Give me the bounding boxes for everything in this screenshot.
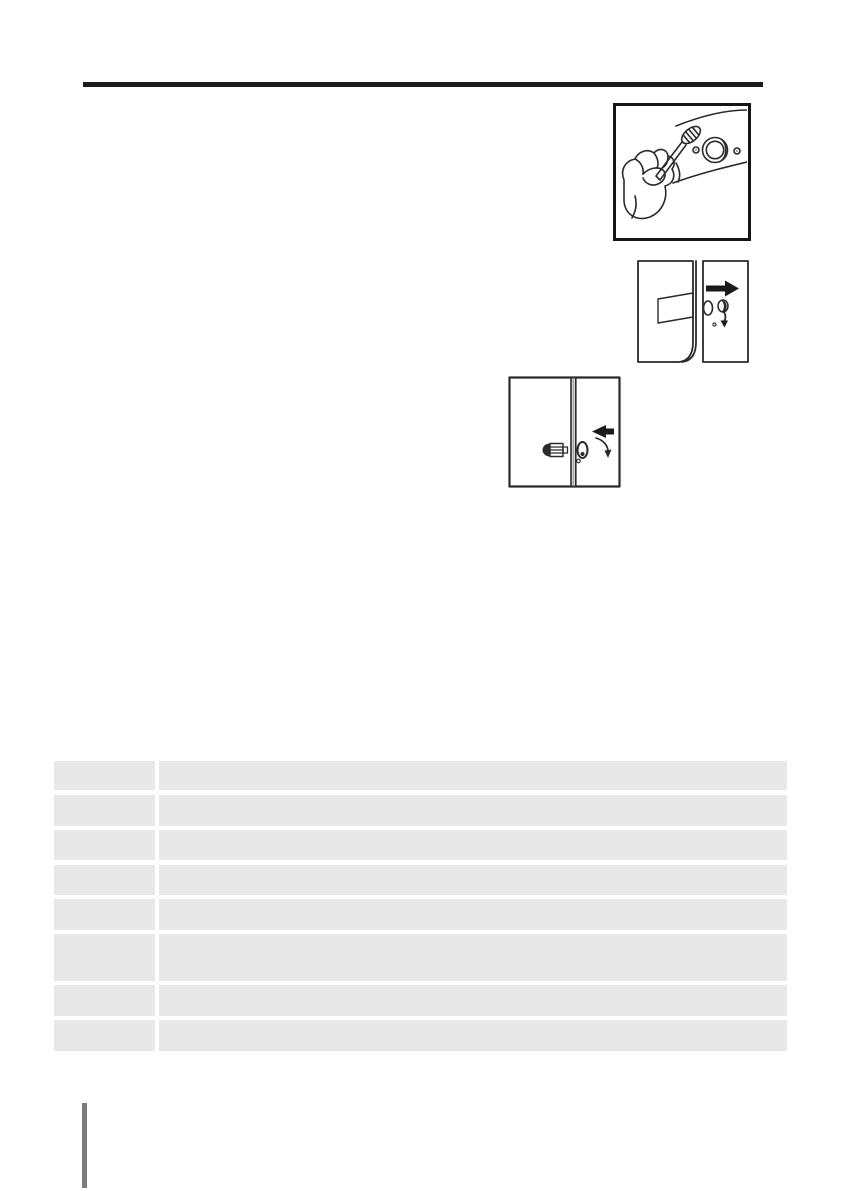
table-cell-desc (159, 865, 787, 895)
hand-icon (623, 149, 674, 218)
page-edge-bar (82, 1103, 87, 1188)
table-cell-term (54, 934, 155, 981)
section-divider-rule (83, 82, 763, 87)
down-arrow-head (721, 321, 729, 328)
plug-icon (713, 300, 728, 328)
figure-door-gap-plug (508, 376, 621, 488)
hole-dot (581, 452, 585, 456)
screw-left-icon (693, 147, 699, 153)
figure-door-panels-plug (636, 257, 750, 369)
table-cell-term (54, 985, 155, 1016)
table-row (54, 899, 787, 930)
left-arrow-icon (592, 425, 614, 438)
table-cell-desc (159, 761, 787, 790)
door-panels-line-art (636, 257, 750, 369)
fitting-ring-icon (703, 138, 728, 163)
table-cell-desc (159, 795, 787, 826)
table-cell-term (54, 899, 155, 930)
rotate-arrow-head (605, 450, 612, 459)
screw-plug-icon (543, 444, 568, 457)
left-door-edge-line (682, 261, 696, 362)
table-cell-desc (159, 934, 787, 981)
panel-top-edge (676, 110, 747, 126)
table-row (54, 1020, 787, 1051)
table-row (54, 761, 787, 790)
table-row (54, 934, 787, 981)
tiny-ring (713, 323, 716, 326)
table-cell-desc (159, 985, 787, 1016)
cleaning-fitting-line-art (616, 106, 747, 237)
spec-table (54, 761, 787, 1051)
panel-bottom-edge (673, 162, 747, 183)
figure-cleaning-fitting (613, 103, 751, 241)
manual-page (0, 0, 842, 1191)
table-row (54, 830, 787, 860)
door-gap (571, 379, 576, 486)
table-cell-term (54, 761, 155, 790)
hole-oval (704, 301, 713, 315)
door-sticker (658, 293, 693, 323)
panel-fold-arc (676, 163, 680, 182)
table-row (54, 865, 787, 895)
table-cell-term (54, 830, 155, 860)
right-arrow-icon (706, 281, 739, 297)
table-cell-term (54, 1020, 155, 1051)
table-row (54, 985, 787, 1016)
door-gap-line-art (508, 376, 621, 488)
screw-right-icon (734, 148, 740, 154)
table-cell-desc (159, 830, 787, 860)
table-cell-desc (159, 1020, 787, 1051)
table-cell-desc (159, 899, 787, 930)
table-cell-term (54, 865, 155, 895)
table-cell-term (54, 795, 155, 826)
left-door-panel (638, 261, 693, 362)
table-row (54, 795, 787, 826)
tiny-ring (577, 459, 581, 463)
